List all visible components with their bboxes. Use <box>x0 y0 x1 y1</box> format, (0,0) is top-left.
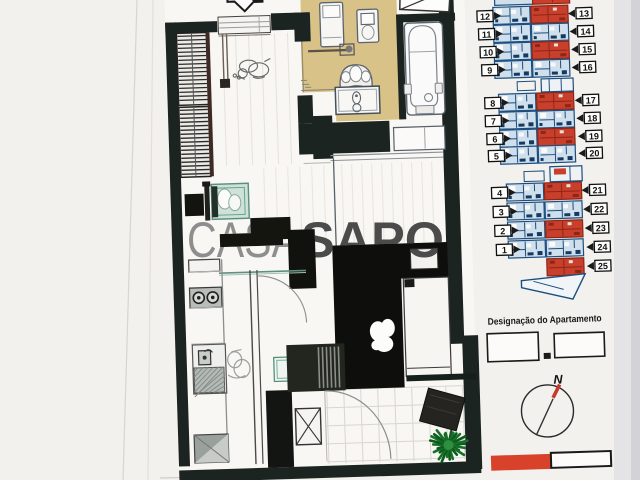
svg-text:9: 9 <box>487 66 492 76</box>
svg-text:19: 19 <box>589 131 599 141</box>
svg-text:24: 24 <box>597 242 607 252</box>
svg-text:2: 2 <box>500 226 505 236</box>
svg-text:7: 7 <box>491 116 496 126</box>
svg-text:8: 8 <box>490 98 495 108</box>
svg-text:23: 23 <box>596 223 606 233</box>
svg-text:CASA: CASA <box>187 212 300 268</box>
svg-text:5: 5 <box>494 151 499 161</box>
svg-text:4: 4 <box>497 188 502 198</box>
svg-text:20: 20 <box>589 148 599 158</box>
svg-text:17: 17 <box>586 95 596 105</box>
svg-text:25: 25 <box>598 261 608 271</box>
svg-text:6: 6 <box>492 134 497 144</box>
svg-text:15: 15 <box>582 44 592 54</box>
svg-text:14: 14 <box>580 26 590 36</box>
svg-text:SAPO: SAPO <box>301 212 444 268</box>
svg-text:3: 3 <box>499 207 504 217</box>
svg-text:10: 10 <box>483 47 493 57</box>
svg-text:13: 13 <box>579 8 589 18</box>
svg-text:21: 21 <box>592 185 602 195</box>
svg-text:11: 11 <box>482 30 492 40</box>
svg-text:16: 16 <box>583 62 593 72</box>
svg-text:22: 22 <box>594 204 604 214</box>
svg-text:12: 12 <box>480 12 490 22</box>
svg-text:18: 18 <box>587 113 597 123</box>
svg-text:1: 1 <box>502 245 507 255</box>
